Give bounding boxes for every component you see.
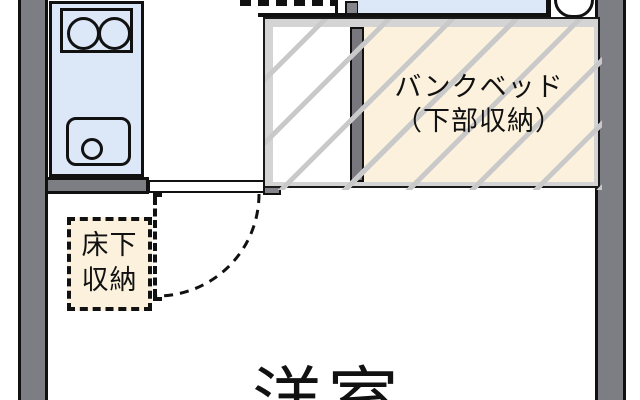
sink-drain-icon <box>81 138 103 160</box>
wall-kitchen-bottom <box>45 177 149 194</box>
floor-storage-label-line2: 収納 <box>71 263 148 298</box>
sink-icon <box>66 117 131 166</box>
door-leaf-tick <box>153 297 162 301</box>
room-label: 洋室 <box>252 344 404 400</box>
door-leaf <box>153 197 157 297</box>
bunk-bed-label: バンクベッド （下部収納） <box>364 27 594 182</box>
door-opening <box>148 180 265 193</box>
floor-storage-box: 床下 収納 <box>67 217 152 311</box>
wall-left <box>18 0 48 400</box>
toilet-icon <box>554 0 594 18</box>
bunk-bed-closet: バンクベッド （下部収納） <box>263 17 600 188</box>
dashed-partition-line <box>240 0 337 6</box>
bunk-bed-label-line1: バンクベッド <box>394 71 563 105</box>
stove-icon <box>60 8 133 53</box>
stove-burner-icon <box>67 17 100 50</box>
bunk-bed-label-line2: （下部収納） <box>395 105 563 139</box>
toilet-partition <box>546 0 551 17</box>
floorplan: バンクベッド （下部収納） 床下 収納 洋室 <box>0 0 640 400</box>
floor-storage-label-line1: 床下 <box>71 228 148 263</box>
stove-burner-icon <box>98 17 131 50</box>
door-hinge-tick <box>153 193 162 197</box>
